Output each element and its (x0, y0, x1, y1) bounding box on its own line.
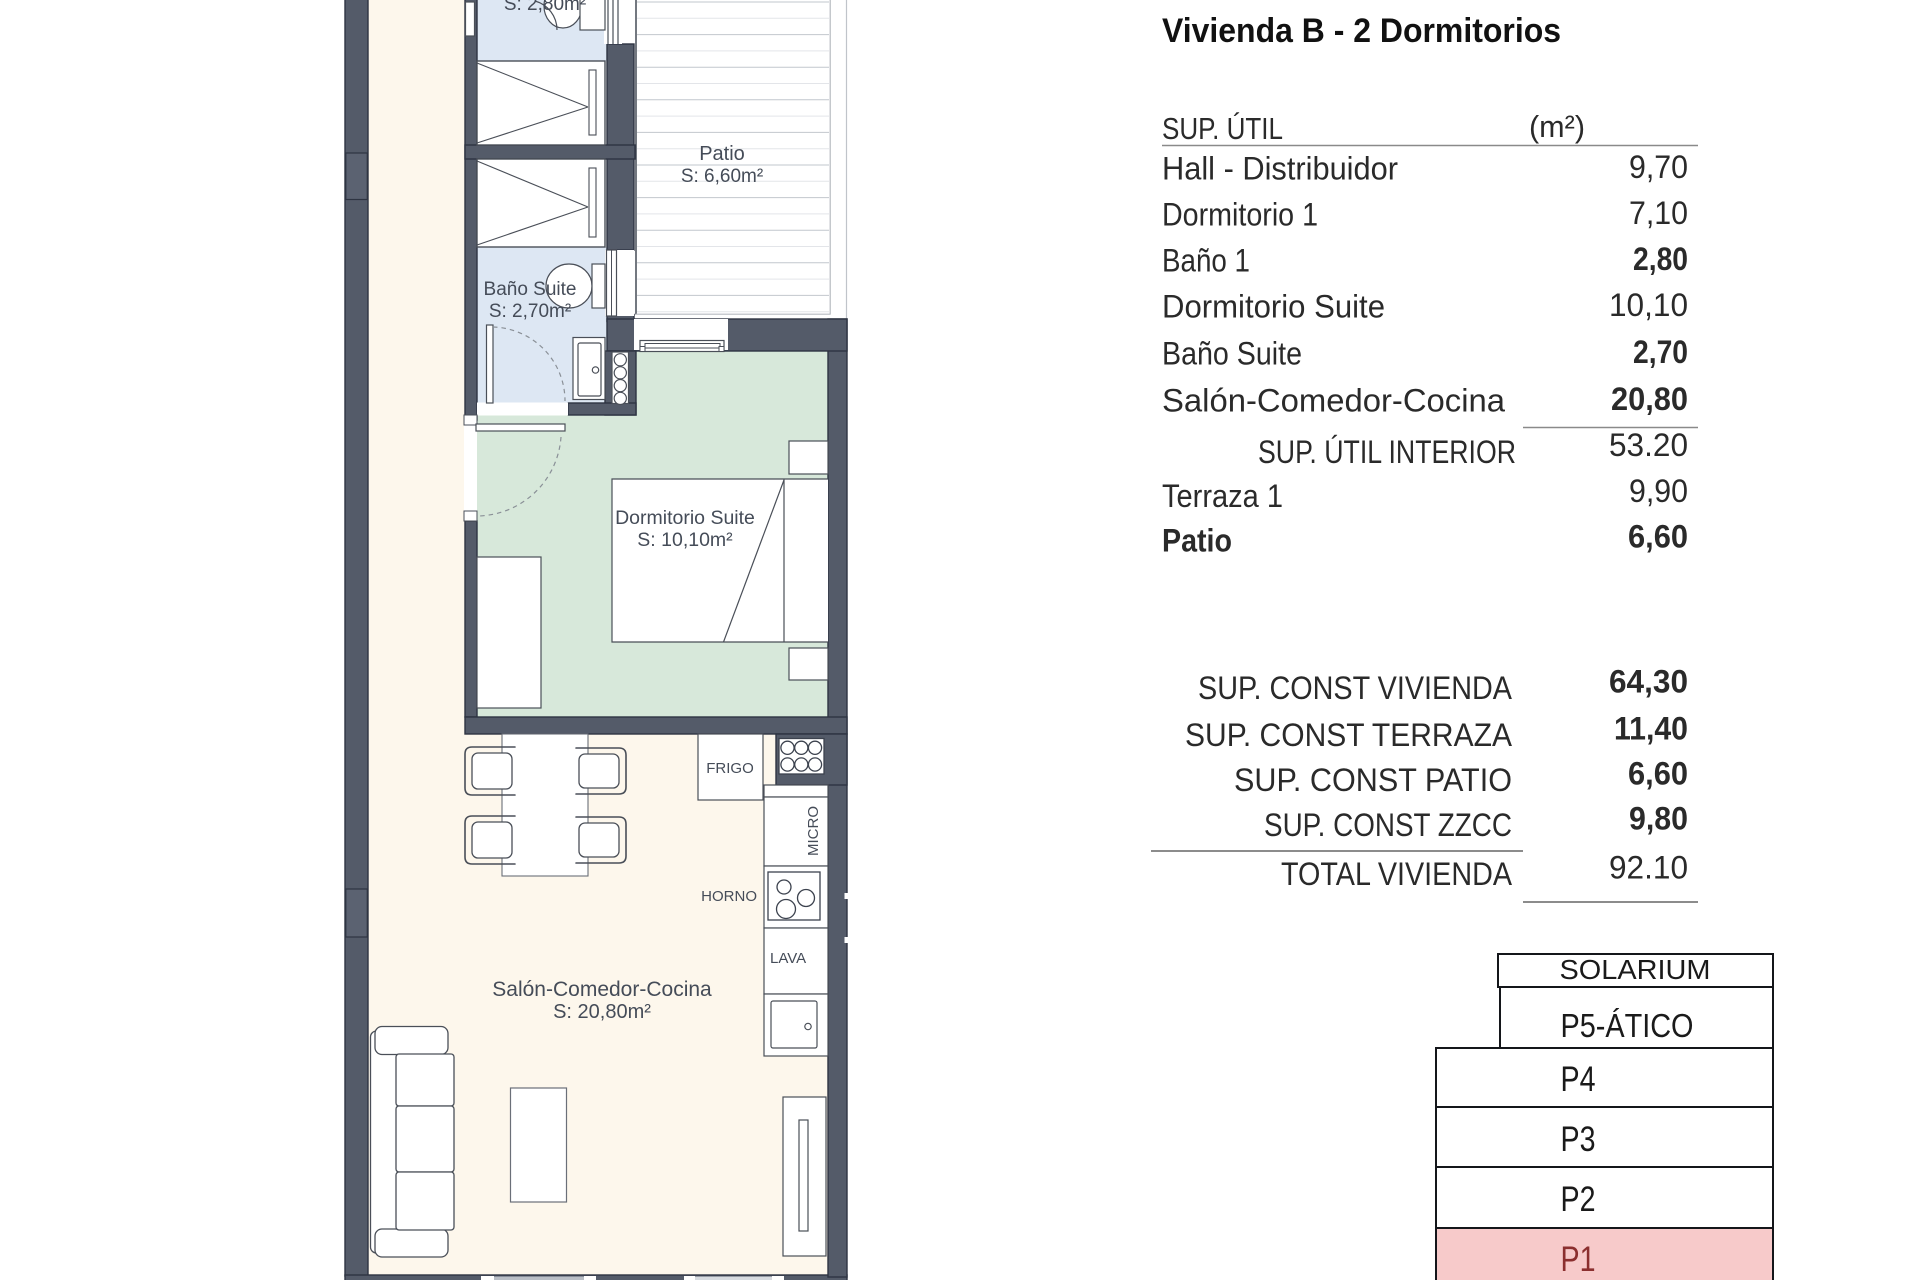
svg-text:S: 2,80m²: S: 2,80m² (504, 0, 586, 15)
svg-text:2,70: 2,70 (1633, 334, 1688, 370)
svg-text:Dormitorio 1: Dormitorio 1 (1162, 197, 1318, 233)
svg-text:TOTAL VIVIENDA: TOTAL VIVIENDA (1281, 856, 1513, 892)
svg-text:64,30: 64,30 (1609, 664, 1688, 700)
svg-text:Baño Suite: Baño Suite (484, 279, 577, 300)
svg-text:9,70: 9,70 (1629, 149, 1688, 185)
svg-text:SUP. CONST VIVIENDA: SUP. CONST VIVIENDA (1198, 670, 1513, 706)
svg-text:Baño Suite: Baño Suite (1162, 336, 1302, 372)
svg-text:S: 20,80m²: S: 20,80m² (553, 1001, 651, 1023)
svg-text:Salón-Comedor-Cocina: Salón-Comedor-Cocina (492, 978, 712, 1001)
svg-text:P1: P1 (1561, 1240, 1596, 1279)
svg-text:S: 2,70m²: S: 2,70m² (489, 301, 571, 322)
svg-text:P2: P2 (1561, 1180, 1596, 1219)
svg-text:Patio: Patio (1162, 523, 1232, 559)
svg-text:6,60: 6,60 (1628, 756, 1688, 792)
svg-text:FRIGO: FRIGO (706, 760, 754, 777)
svg-text:MICRO: MICRO (805, 806, 822, 856)
svg-text:SUP. ÚTIL INTERIOR: SUP. ÚTIL INTERIOR (1258, 434, 1516, 470)
svg-text:Baño 1: Baño 1 (1162, 243, 1250, 279)
svg-text:Dormitorio Suite: Dormitorio Suite (615, 507, 755, 529)
svg-text:6,60: 6,60 (1628, 519, 1688, 555)
svg-text:(m²): (m²) (1529, 109, 1585, 144)
svg-text:Patio: Patio (699, 143, 745, 165)
svg-text:Hall - Distribuidor: Hall - Distribuidor (1162, 151, 1398, 187)
svg-text:SUP. CONST PATIO: SUP. CONST PATIO (1234, 762, 1512, 798)
svg-text:SOLARIUM: SOLARIUM (1560, 954, 1711, 985)
svg-text:P5-ÁTICO: P5-ÁTICO (1561, 1007, 1694, 1044)
svg-text:Vivienda B - 2 Dormitorios: Vivienda B - 2 Dormitorios (1162, 12, 1561, 50)
svg-text:HORNO: HORNO (701, 888, 757, 905)
svg-text:9,90: 9,90 (1629, 473, 1688, 509)
svg-text:SUP. CONST ZZCC: SUP. CONST ZZCC (1264, 807, 1512, 843)
svg-text:9,80: 9,80 (1629, 801, 1688, 837)
svg-text:Salón-Comedor-Cocina: Salón-Comedor-Cocina (1162, 383, 1505, 419)
svg-text:P3: P3 (1561, 1120, 1596, 1159)
svg-text:P4: P4 (1561, 1060, 1596, 1099)
svg-text:Terraza 1: Terraza 1 (1162, 478, 1283, 514)
svg-text:LAVA: LAVA (770, 950, 806, 967)
svg-text:S: 6,60m²: S: 6,60m² (681, 166, 763, 187)
svg-text:20,80: 20,80 (1611, 381, 1688, 417)
svg-text:11,40: 11,40 (1614, 711, 1688, 747)
svg-text:SUP. CONST TERRAZA: SUP. CONST TERRAZA (1185, 717, 1513, 753)
svg-text:92.10: 92.10 (1609, 850, 1688, 886)
svg-text:S: 10,10m²: S: 10,10m² (637, 529, 733, 551)
svg-text:10,10: 10,10 (1609, 287, 1688, 323)
svg-text:53.20: 53.20 (1609, 427, 1688, 463)
svg-text:Dormitorio Suite: Dormitorio Suite (1162, 289, 1385, 325)
svg-text:2,80: 2,80 (1633, 241, 1688, 277)
svg-text:7,10: 7,10 (1629, 195, 1688, 231)
svg-text:SUP. ÚTIL: SUP. ÚTIL (1162, 111, 1283, 146)
